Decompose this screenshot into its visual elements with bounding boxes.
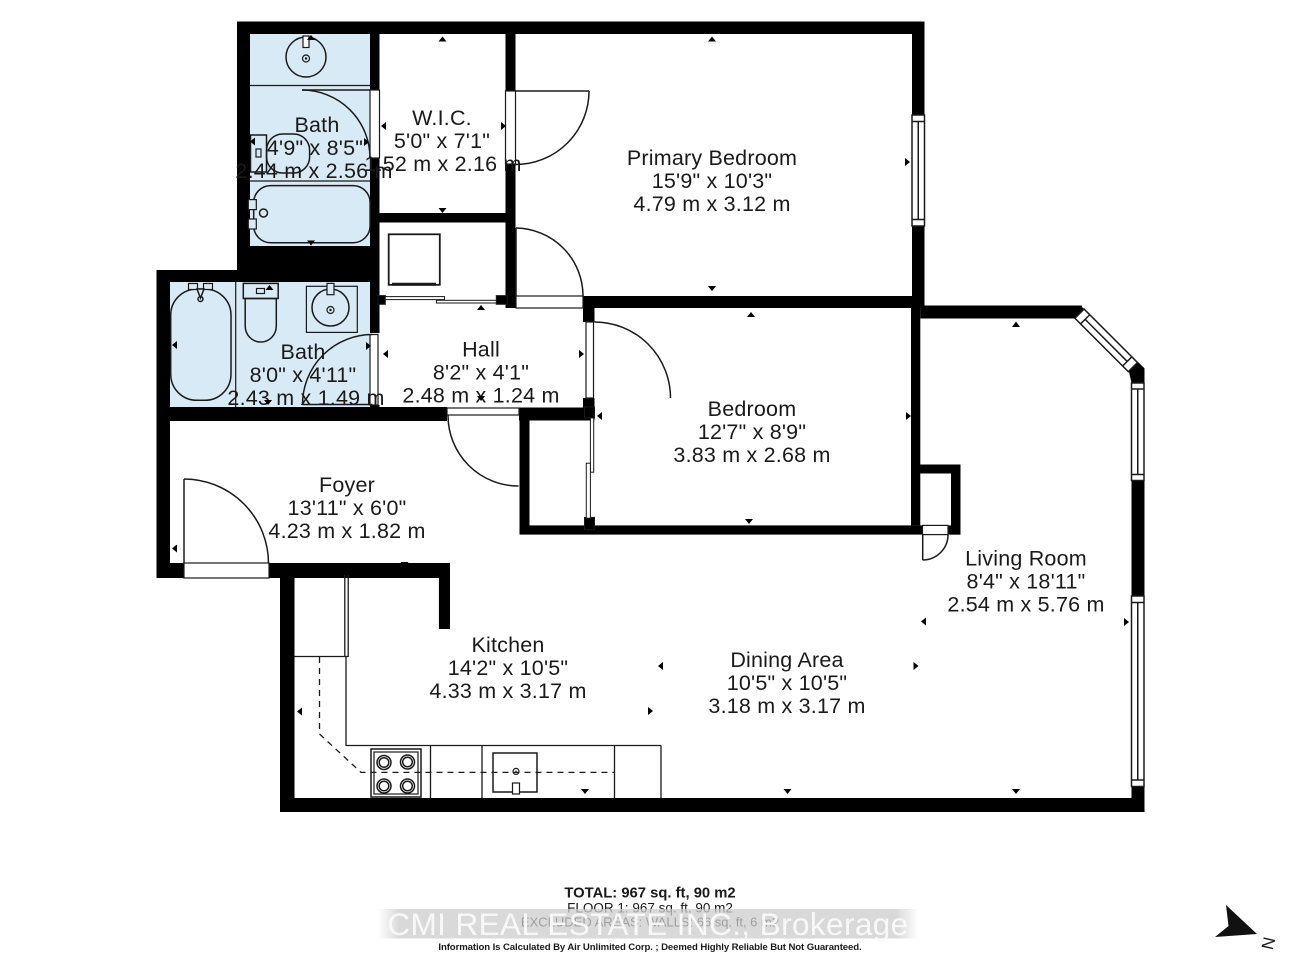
- svg-text:13'11" x 6'0": 13'11" x 6'0": [288, 496, 407, 520]
- svg-text:Living Room: Living Room: [965, 547, 1087, 571]
- svg-text:8'2" x 4'1": 8'2" x 4'1": [433, 361, 529, 385]
- svg-text:Bath: Bath: [280, 340, 325, 364]
- svg-text:10'5" x 10'5": 10'5" x 10'5": [727, 671, 848, 695]
- svg-text:Primary Bedroom: Primary Bedroom: [627, 146, 797, 170]
- svg-text:4'9" x 8'5": 4'9" x 8'5": [267, 136, 363, 160]
- svg-text:CMI REAL ESTATE INC., Brokerag: CMI REAL ESTATE INC., Brokerage: [387, 906, 908, 942]
- svg-text:15'9" x 10'3": 15'9" x 10'3": [652, 169, 773, 193]
- svg-text:Bedroom: Bedroom: [708, 397, 797, 421]
- svg-text:3.18 m x 3.17 m: 3.18 m x 3.17 m: [708, 694, 865, 718]
- svg-text:4.79 m x 3.12 m: 4.79 m x 3.12 m: [633, 192, 790, 216]
- svg-text:8'0" x 4'11": 8'0" x 4'11": [250, 363, 357, 387]
- svg-text:Hall: Hall: [462, 338, 500, 362]
- svg-text:8'4" x 18'11": 8'4" x 18'11": [967, 570, 1086, 594]
- svg-text:Dining Area: Dining Area: [730, 648, 843, 672]
- svg-text:Kitchen: Kitchen: [471, 633, 544, 657]
- svg-text:TOTAL: 967 sq. ft, 90 m2: TOTAL: 967 sq. ft, 90 m2: [564, 886, 735, 902]
- svg-text:2.48 m x 1.24 m: 2.48 m x 1.24 m: [402, 384, 559, 408]
- svg-text:Bath: Bath: [294, 113, 339, 137]
- svg-text:4.23 m x 1.82 m: 4.23 m x 1.82 m: [268, 519, 425, 543]
- svg-text:2.54 m x 5.76 m: 2.54 m x 5.76 m: [947, 593, 1104, 617]
- svg-text:Information Is Calculated By A: Information Is Calculated By Air Unlimit…: [438, 942, 861, 953]
- svg-text:Foyer: Foyer: [319, 473, 375, 497]
- svg-text:2.43 m x 1.49 m: 2.43 m x 1.49 m: [227, 386, 384, 410]
- svg-text:12'7" x 8'9": 12'7" x 8'9": [698, 420, 806, 444]
- svg-text:1.52 m x 2.16 m: 1.52 m x 2.16 m: [364, 152, 521, 176]
- svg-text:5'0" x 7'1": 5'0" x 7'1": [394, 129, 490, 153]
- svg-text:W.I.C.: W.I.C.: [412, 106, 472, 130]
- svg-text:14'2" x 10'5": 14'2" x 10'5": [448, 656, 569, 680]
- svg-text:3.83 m x 2.68 m: 3.83 m x 2.68 m: [673, 443, 830, 467]
- svg-text:4.33 m x 3.17 m: 4.33 m x 3.17 m: [429, 679, 586, 703]
